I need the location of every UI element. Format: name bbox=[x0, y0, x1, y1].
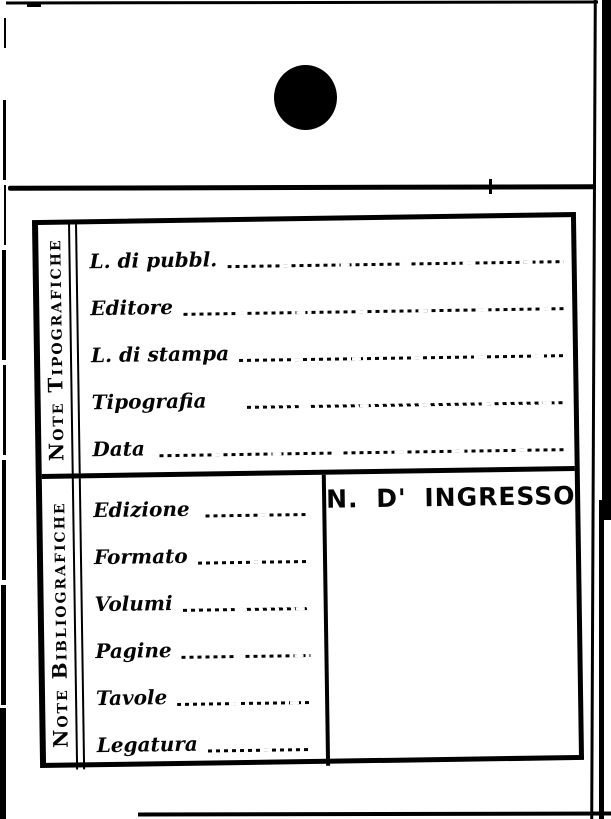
field-label: Legatura bbox=[96, 721, 198, 769]
scan-artifact-left-edge bbox=[2, 250, 6, 360]
scan-artifact-left-edge bbox=[3, 100, 6, 180]
scan-artifact-top-edge bbox=[6, 0, 598, 4]
ingresso-box: N. D' INGRESSO bbox=[326, 471, 580, 766]
scan-artifact-bottom-line bbox=[138, 812, 611, 817]
field-row-edizione: Edizione bbox=[93, 484, 309, 534]
section-side-label: Note Bibliografiche bbox=[45, 501, 73, 748]
fields-tipografiche: L. di pubbl. Editore L. di stampa Tipogr… bbox=[77, 217, 575, 473]
side-label-column: Note Bibliografiche bbox=[42, 479, 76, 770]
header-separator-rule bbox=[8, 184, 596, 191]
dotted-entry-line bbox=[159, 448, 566, 457]
field-label: Pagine bbox=[95, 627, 172, 675]
field-label: Volumi bbox=[94, 580, 173, 628]
scan-artifact-rule-tick bbox=[489, 179, 492, 194]
scan-artifact-left-edge bbox=[1, 585, 6, 705]
scan-artifact-left-edge bbox=[2, 460, 6, 580]
field-label: Data bbox=[92, 425, 145, 473]
page-right-border-line bbox=[590, 0, 597, 819]
field-row-tavole: Tavole bbox=[96, 672, 312, 722]
side-label-column: Note Tipografiche bbox=[38, 225, 72, 474]
field-row-volumi: Volumi bbox=[94, 578, 310, 628]
field-row-editore: Editore bbox=[90, 278, 565, 332]
dotted-entry-line bbox=[206, 513, 309, 518]
field-label: Formato bbox=[94, 533, 188, 581]
field-row-l-di-pubbl: L. di pubbl. bbox=[89, 231, 564, 285]
field-row-tipografia: Tipografia bbox=[91, 372, 566, 426]
dotted-entry-line bbox=[239, 354, 565, 362]
field-label: Tipografia bbox=[91, 377, 206, 426]
dotted-entry-line bbox=[198, 560, 309, 565]
field-label: L. di stampa bbox=[91, 330, 230, 379]
field-label: Tavole bbox=[96, 674, 168, 722]
scanned-catalog-card-page: Note Tipografiche L. di pubbl. Editore L… bbox=[0, 0, 611, 819]
punch-hole-icon bbox=[274, 65, 337, 130]
scan-artifact-bottom-left bbox=[0, 752, 6, 819]
scan-artifact-right-bar bbox=[599, 500, 604, 819]
field-label: Edizione bbox=[93, 486, 190, 534]
scan-artifact-left-edge bbox=[4, 18, 6, 48]
dotted-entry-line bbox=[183, 307, 564, 316]
dotted-entry-line bbox=[227, 260, 563, 268]
field-label: Editore bbox=[90, 284, 173, 332]
catalog-card-box: Note Tipografiche L. di pubbl. Editore L… bbox=[32, 212, 584, 768]
fields-bibliografiche: Edizione Formato Volumi Pagine Tavole bbox=[81, 475, 326, 770]
section-side-label: Note Tipografiche bbox=[41, 238, 68, 461]
dotted-entry-line bbox=[177, 701, 311, 706]
scan-artifact-right-bar bbox=[602, 0, 611, 520]
field-row-l-di-stampa: L. di stampa bbox=[91, 325, 566, 379]
field-row-pagine: Pagine bbox=[95, 625, 311, 675]
dotted-entry-line bbox=[208, 748, 312, 753]
section-note-tipografiche: Note Tipografiche L. di pubbl. Editore L… bbox=[38, 217, 575, 474]
field-label: L. di pubbl. bbox=[89, 236, 217, 285]
field-row-formato: Formato bbox=[94, 531, 310, 581]
scan-artifact-left-edge bbox=[3, 365, 6, 455]
dotted-entry-line bbox=[182, 654, 311, 659]
dotted-entry-line bbox=[183, 607, 310, 612]
scan-artifact-left-edge bbox=[0, 708, 6, 758]
dotted-entry-line bbox=[247, 401, 566, 409]
field-row-data: Data bbox=[92, 419, 567, 473]
scan-artifact-top-left-dash bbox=[27, 3, 41, 7]
field-row-legatura: Legatura bbox=[96, 719, 312, 769]
section-note-bibliografiche: Note Bibliografiche Edizione Formato Vol… bbox=[42, 471, 579, 770]
scan-artifact-left-edge bbox=[4, 185, 6, 245]
ingresso-title: N. D' INGRESSO bbox=[326, 481, 576, 514]
